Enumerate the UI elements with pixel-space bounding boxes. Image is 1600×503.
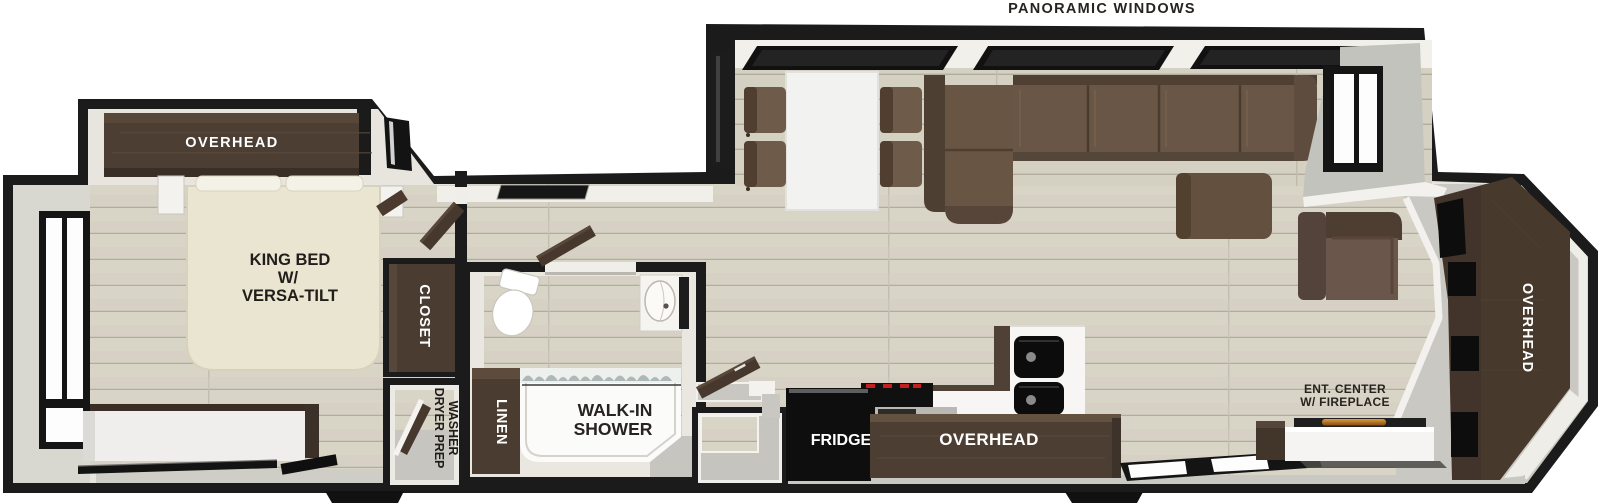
svg-text:FRIDGE: FRIDGE	[811, 432, 872, 449]
svg-text:W/ FIREPLACE: W/ FIREPLACE	[1300, 395, 1390, 409]
svg-text:KING BED: KING BED	[250, 251, 331, 269]
svg-text:WALK-IN: WALK-IN	[578, 400, 653, 420]
svg-text:OVERHEAD: OVERHEAD	[1519, 283, 1535, 373]
svg-text:OVERHEAD: OVERHEAD	[185, 135, 278, 151]
svg-text:LINEN: LINEN	[493, 399, 509, 445]
svg-text:DRYER PREP: DRYER PREP	[432, 388, 446, 469]
svg-text:PANORAMIC WINDOWS: PANORAMIC WINDOWS	[1008, 1, 1196, 17]
svg-text:CLOSET: CLOSET	[416, 284, 432, 348]
svg-text:WASHER: WASHER	[446, 401, 460, 456]
svg-text:ENT. CENTER: ENT. CENTER	[1304, 382, 1386, 396]
svg-text:OVERHEAD: OVERHEAD	[939, 430, 1039, 449]
svg-text:W/: W/	[278, 269, 299, 287]
svg-text:VERSA-TILT: VERSA-TILT	[242, 287, 338, 305]
svg-text:SHOWER: SHOWER	[574, 419, 653, 439]
